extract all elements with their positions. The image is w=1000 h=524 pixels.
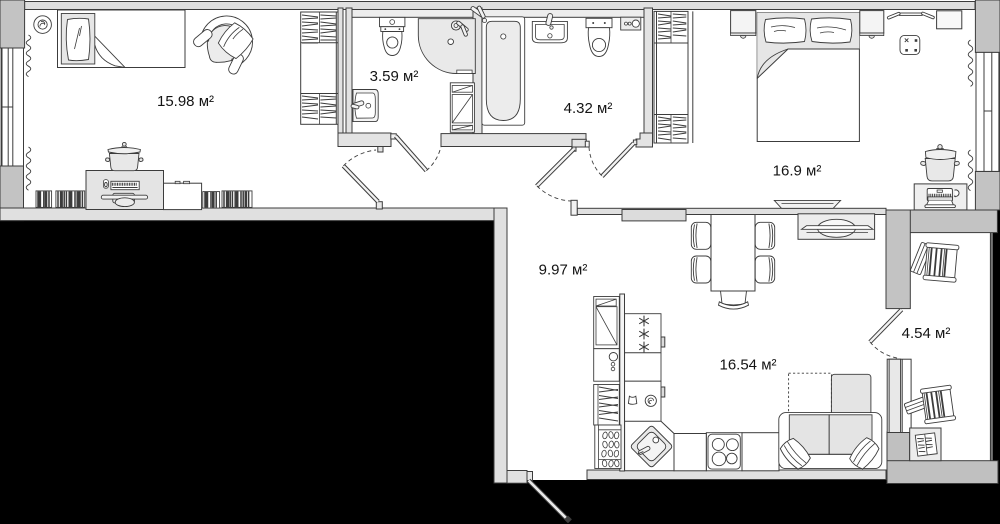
svg-text:15.98 м²: 15.98 м² (157, 93, 214, 110)
svg-text:16.54 м²: 16.54 м² (719, 357, 776, 374)
svg-text:4.54 м²: 4.54 м² (902, 325, 951, 342)
svg-text:3.59 м²: 3.59 м² (370, 68, 419, 85)
svg-text:4.32 м²: 4.32 м² (564, 100, 613, 117)
svg-text:9.97 м²: 9.97 м² (539, 262, 588, 279)
svg-text:16.9 м²: 16.9 м² (773, 163, 822, 180)
